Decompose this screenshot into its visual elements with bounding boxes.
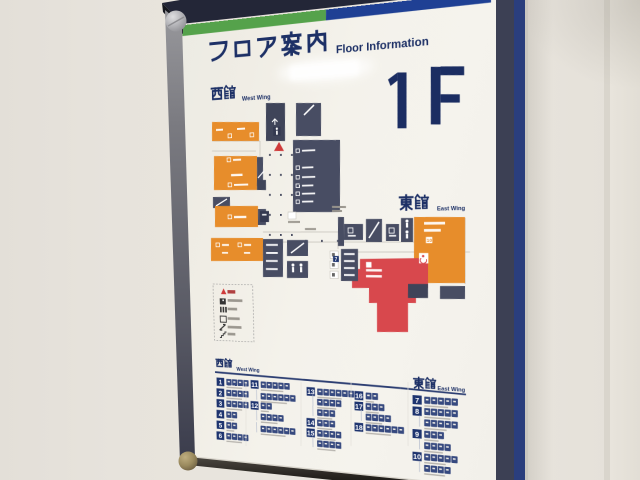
svg-text:5: 5 <box>219 422 223 430</box>
svg-text:Floor Information: Floor Information <box>336 35 429 57</box>
svg-text:West Wing: West Wing <box>236 366 259 373</box>
svg-text:9: 9 <box>415 431 420 439</box>
svg-text:13: 13 <box>307 389 315 397</box>
svg-text:12: 12 <box>251 403 259 411</box>
svg-text:18: 18 <box>355 424 363 432</box>
svg-text:11: 11 <box>251 382 258 390</box>
svg-text:10: 10 <box>427 237 433 243</box>
svg-text:7: 7 <box>415 397 420 405</box>
svg-text:2: 2 <box>219 390 223 398</box>
svg-text:4: 4 <box>219 411 223 419</box>
svg-text:14: 14 <box>307 419 315 427</box>
svg-text:16: 16 <box>355 393 363 401</box>
svg-text:East Wing: East Wing <box>437 205 465 213</box>
svg-text:West Wing: West Wing <box>242 94 271 103</box>
svg-text:8: 8 <box>415 408 420 416</box>
svg-text:10: 10 <box>413 453 422 462</box>
svg-text:1: 1 <box>219 379 223 387</box>
svg-text:17: 17 <box>355 403 363 411</box>
svg-text:6: 6 <box>219 433 223 441</box>
svg-text:3: 3 <box>219 401 223 409</box>
svg-text:15: 15 <box>307 430 315 438</box>
